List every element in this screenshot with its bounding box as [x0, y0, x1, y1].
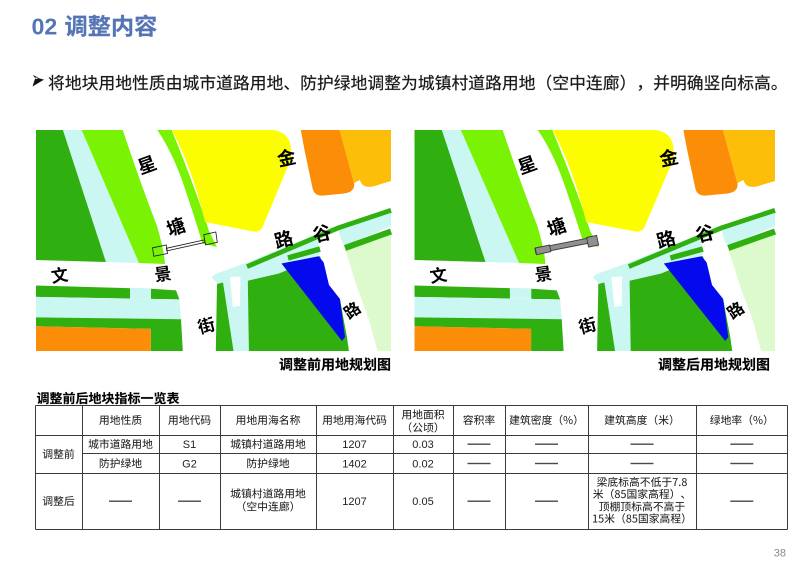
- svg-text:1207: 1207: [342, 496, 366, 508]
- svg-text:0.05: 0.05: [412, 496, 433, 508]
- svg-text:02: 02: [32, 14, 58, 40]
- svg-text:G2: G2: [182, 458, 197, 470]
- svg-text:1402: 1402: [342, 458, 366, 470]
- svg-text:0.03: 0.03: [412, 439, 433, 451]
- svg-text:0.02: 0.02: [412, 458, 433, 470]
- svg-text:38: 38: [774, 548, 786, 560]
- svg-text:1207: 1207: [342, 439, 366, 451]
- svg-text:S1: S1: [183, 439, 196, 451]
